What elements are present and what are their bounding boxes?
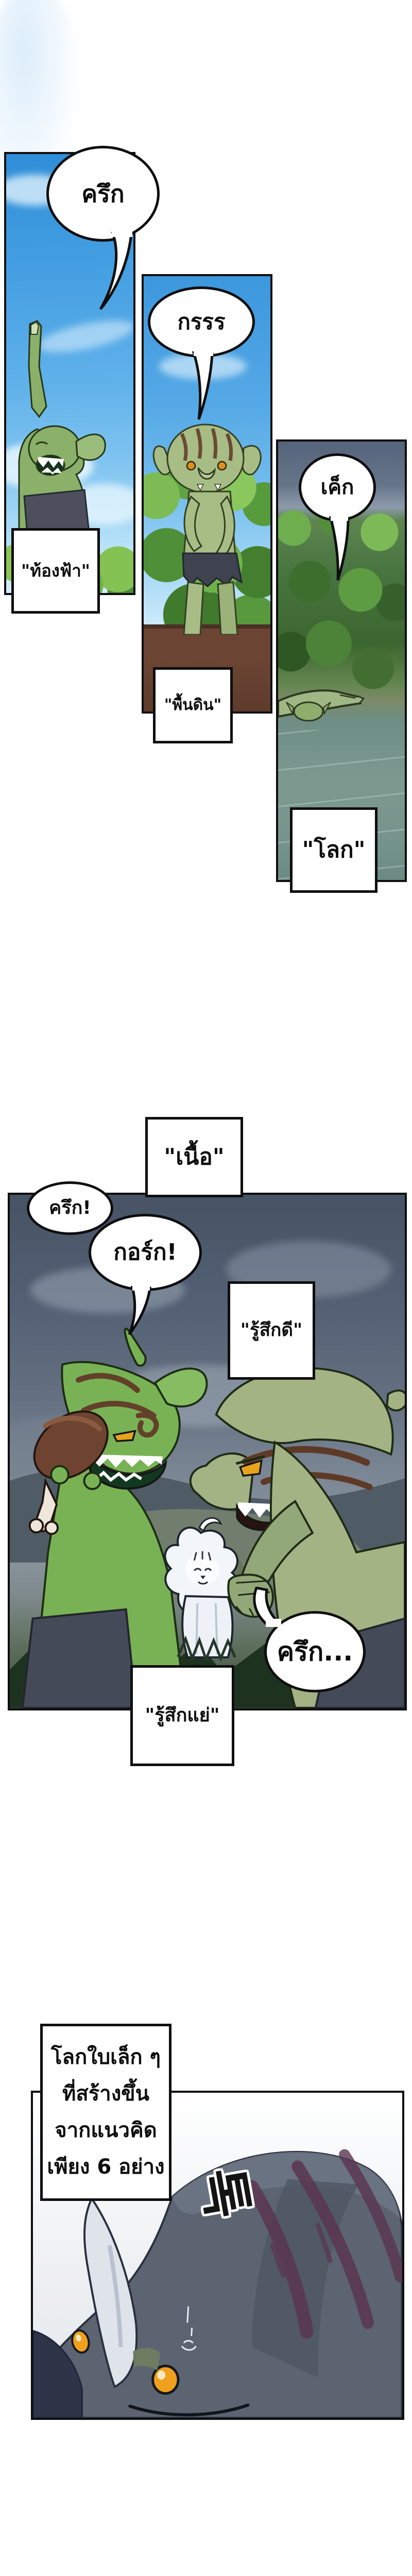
caption-ground: "พื้นดิน"	[153, 667, 233, 743]
speech-bubble-krik: ครึก!	[27, 1181, 113, 1235]
speech-bubble-grrr: กรรร	[148, 286, 255, 358]
speech-bubble-kek-text: เค็ก	[321, 477, 354, 498]
narration-line-2: ที่สร้างขึ้น	[62, 2076, 149, 2112]
speech-bubble-krik-trail-text: ครึก...	[277, 1639, 353, 1665]
caption-world: "โลก"	[290, 807, 377, 893]
speech-bubble-gork-tail	[125, 1286, 156, 1337]
caption-ground-text: "พื้นดิน"	[164, 697, 222, 715]
caption-feel-good-text: "รู้สึกดี"	[241, 1320, 303, 1341]
goblin-kid-at-bank	[285, 696, 332, 722]
caption-feel-bad: "รู้สึกแย่"	[130, 1665, 234, 1766]
caption-sky-text: "ท้องฟ้า"	[21, 561, 90, 581]
speech-bubble-grrr-text: กรรร	[177, 311, 225, 333]
sfx-drop: 톡	[194, 2164, 255, 2222]
speech-bubble-krueck-tail	[99, 232, 136, 313]
goblin-kid-pointing-down	[150, 418, 268, 635]
narration-line-4: เพียง 6 อย่าง	[47, 2149, 164, 2185]
caption-world-text: "โลก"	[302, 837, 365, 863]
narration-line-3: จากแนวคิด	[55, 2112, 157, 2149]
speech-bubble-krik-trail-tail	[246, 1587, 282, 1628]
speech-bubble-krueck: ครึก	[46, 146, 160, 242]
narration-box: โลกใบเล็ก ๆ ที่สร้างขึ้น จากแนวคิด เพียง…	[40, 2024, 171, 2201]
speech-bubble-krueck-text: ครึก	[81, 182, 124, 206]
webtoon-page: ครึก "ท้องฟ้า"	[0, 0, 412, 2576]
caption-feel-bad-text: "รู้สึกแย่"	[145, 1705, 220, 1726]
speech-bubble-kek: เค็ก	[299, 453, 376, 521]
caption-sky: "ท้องฟ้า"	[11, 528, 100, 614]
narration-line-1: โลกใบเล็ก ๆ	[51, 2039, 161, 2076]
speech-bubble-kek-tail	[327, 516, 352, 583]
speech-bubble-gork-text: กอร์ก!	[113, 1241, 177, 1264]
caption-meat: "เนื้อ"	[145, 1117, 243, 1197]
caption-meat-text: "เนื้อ"	[164, 1144, 224, 1171]
caption-feel-good: "รู้สึกดี"	[228, 1281, 315, 1380]
speech-bubble-krik-text: ครึก!	[49, 1199, 91, 1217]
speech-bubble-grrr-tail	[186, 351, 215, 423]
speech-bubble-gork: กอร์ก!	[89, 1214, 202, 1291]
